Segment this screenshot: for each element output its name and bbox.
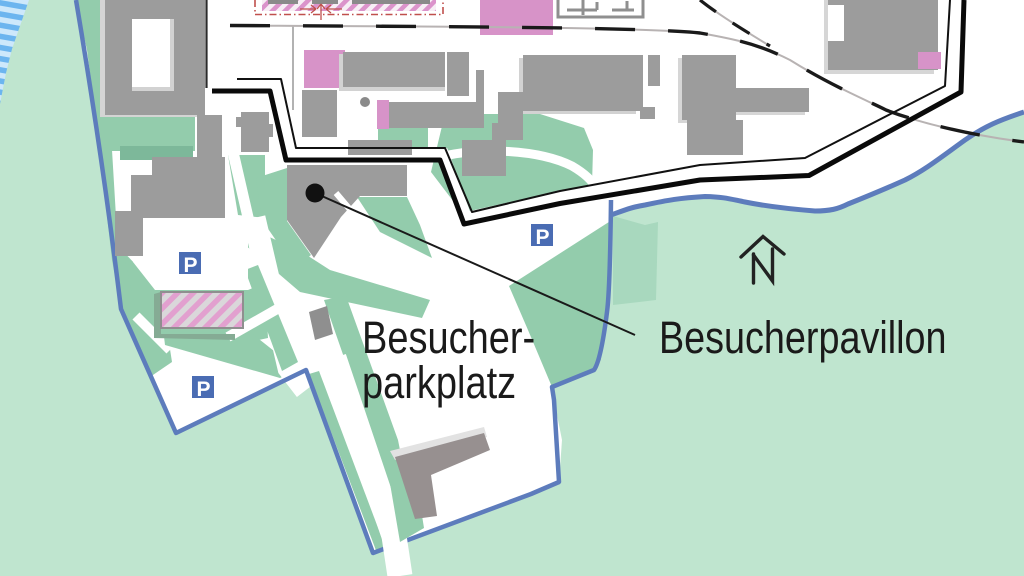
svg-text:Besucherpavillon: Besucherpavillon — [659, 312, 947, 363]
svg-text:parkplatz: parkplatz — [362, 357, 516, 408]
svg-text:P: P — [196, 378, 210, 401]
svg-text:P: P — [535, 226, 549, 249]
svg-text:P: P — [183, 254, 197, 277]
svg-text:Besucher-: Besucher- — [362, 312, 535, 363]
